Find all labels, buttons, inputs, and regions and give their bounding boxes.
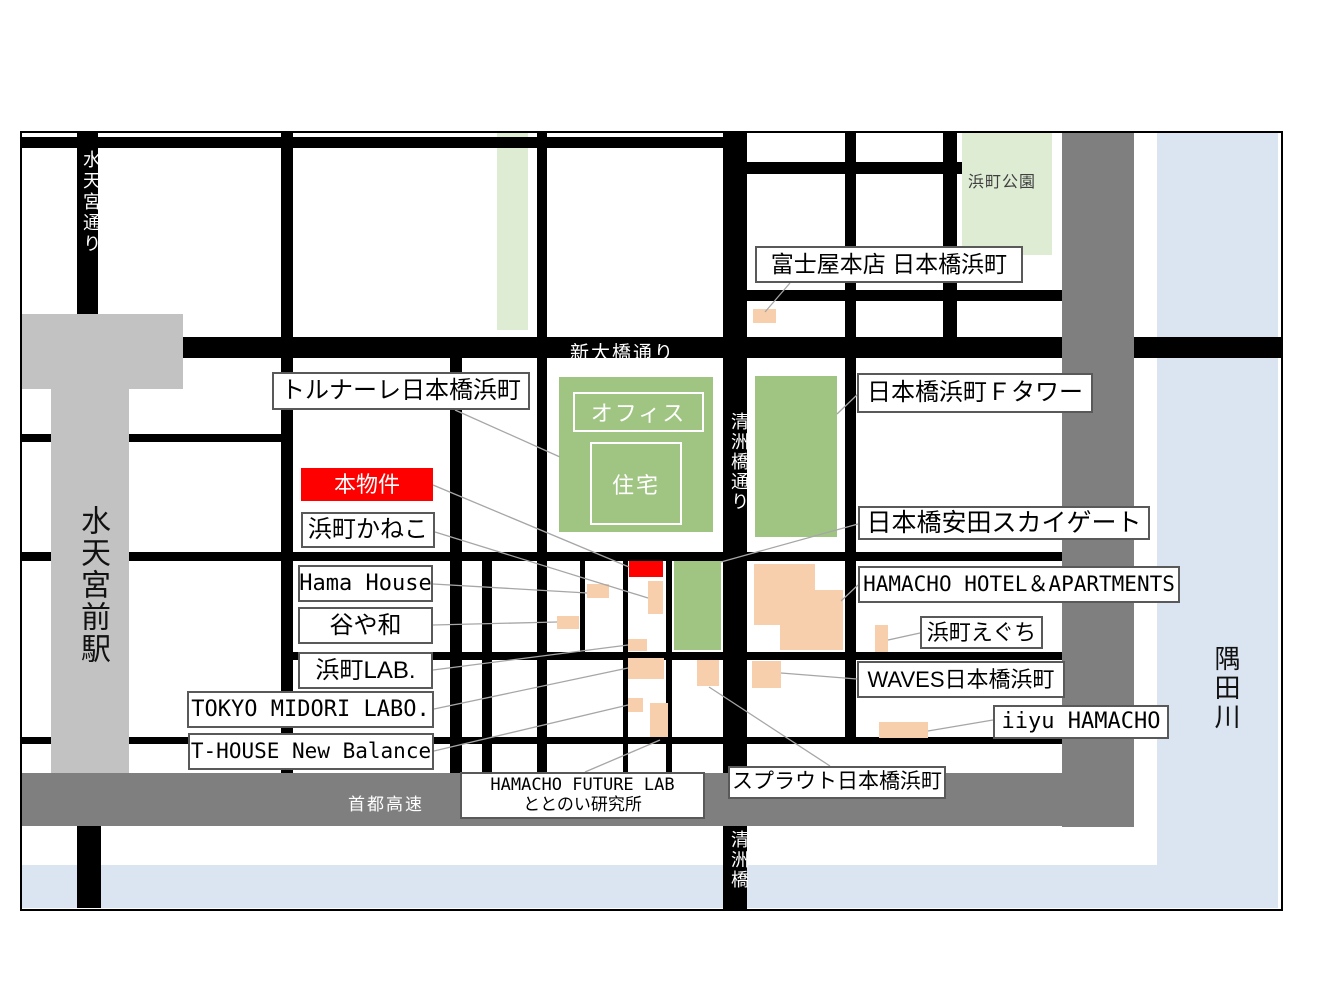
map-page: オフィス住宅 富士屋本店 日本橋浜町トルナーレ日本橋浜町本物件浜町かねこHama… (0, 0, 1344, 1008)
park-name-hamacho: 浜町公園 (968, 168, 1036, 192)
road-name-shuto-expressway: 首都高速 (348, 790, 424, 815)
road-name-kiyosubashi: 清洲橋 (726, 830, 752, 890)
hamacho-area-map: オフィス住宅 富士屋本店 日本橋浜町トルナーレ日本橋浜町本物件浜町かねこHama… (20, 131, 1283, 911)
map-text-layer: 新大橋通り水天宮通り清洲橋通り清洲橋首都高速水天宮前駅隅田川浜町公園 (22, 133, 1281, 909)
river-name-sumida: 隅田川 (1208, 645, 1245, 732)
road-name-suitengu-dori: 水天宮通り (78, 150, 104, 255)
station-name-suitengumae: 水天宮前駅 (70, 505, 114, 665)
road-name-kiyosubashi-dori: 清洲橋通り (726, 412, 752, 512)
road-name-shin-ohashi: 新大橋通り (570, 338, 675, 365)
